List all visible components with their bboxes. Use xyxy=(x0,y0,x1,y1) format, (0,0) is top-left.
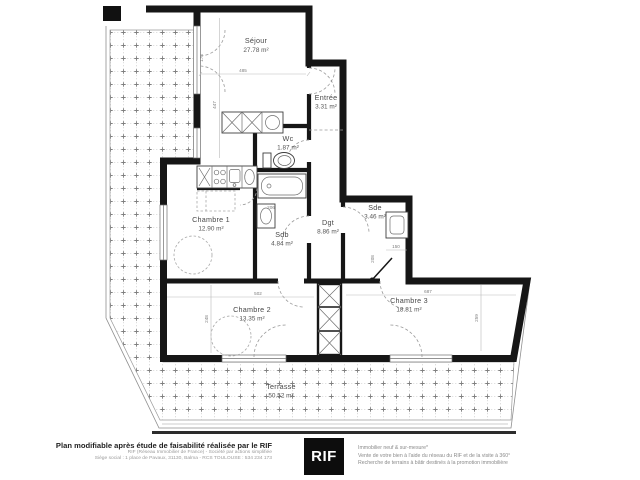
room-area-dgt: 8.86 m² xyxy=(317,229,339,236)
dim-sejour-height: 447 xyxy=(212,101,217,109)
dim-sde-height: 208 xyxy=(370,255,375,263)
room-label-wc: Wc xyxy=(283,134,294,143)
bathtub-icon xyxy=(258,174,306,198)
room-label-chambre1: Chambre 1 xyxy=(192,215,230,224)
room-label-terrasse: Terrasse xyxy=(266,382,296,391)
room-area-chambre2: 13.35 m² xyxy=(239,316,264,323)
rif-logo-text: RIF xyxy=(311,448,337,465)
footer-headline: Plan modifiable après étude de faisabili… xyxy=(30,441,272,450)
rif-logo: RIF xyxy=(304,438,344,475)
room-area-wc: 1.87 m² xyxy=(277,145,299,152)
boundary-corner-wall xyxy=(103,6,121,21)
room-label-entree: Entrée xyxy=(315,93,338,102)
dim-sdb: 206 xyxy=(267,205,275,210)
toilet-icon xyxy=(263,153,295,169)
dim-sejour-width: 485 xyxy=(239,68,247,73)
room-label-sdb: Sdb xyxy=(275,230,289,239)
room-area-terrasse: 50.52 m² xyxy=(268,393,293,400)
dim-chambre3-height: 259 xyxy=(474,314,479,322)
footer-address-line: Siège social : 1 place de Pavaux, 31130,… xyxy=(30,456,272,462)
room-area-entree: 3.31 m² xyxy=(315,104,337,111)
footer-services: Immobilier neuf & sur-mesure* Vente de v… xyxy=(358,445,628,468)
dim-chambre3-width: 687 xyxy=(424,289,432,294)
room-label-chambre3: Chambre 3 xyxy=(390,296,428,305)
closet-shaft xyxy=(318,284,341,355)
room-label-sde: Sde xyxy=(368,203,382,212)
footer-service-3: Recherche de terrains à bâtir destinés à… xyxy=(358,460,628,468)
dim-chambre2-width: 502 xyxy=(254,291,262,296)
window-chambre3 xyxy=(390,355,452,362)
furniture-circle-chambre1 xyxy=(174,236,212,274)
footer-service-1: Immobilier neuf & sur-mesure* xyxy=(358,445,628,453)
footer-disclaimer: Plan modifiable après étude de faisabili… xyxy=(30,441,272,463)
room-label-sejour: Séjour xyxy=(245,36,268,45)
bed-chambre1 xyxy=(197,191,235,211)
floor-plan-page: 485 447 178 502 248 687 259 206 150 208 … xyxy=(0,0,640,480)
closet-boxes xyxy=(222,112,283,133)
floor-plan-drawing: 485 447 178 502 248 687 259 206 150 208 … xyxy=(0,0,640,480)
dim-chambre2-height: 248 xyxy=(204,315,209,323)
room-label-chambre2: Chambre 2 xyxy=(233,305,271,314)
room-area-chambre1: 12.90 m² xyxy=(198,226,223,233)
dim-sde-width: 150 xyxy=(392,244,400,249)
room-area-sde: 3.46 m² xyxy=(364,214,386,221)
footer-service-2: Vente de votre bien à l'aide du réseau d… xyxy=(358,453,628,461)
window-kitchen xyxy=(194,128,201,158)
room-area-sejour: 27.78 m² xyxy=(243,47,268,54)
room-area-chambre3: 18.81 m² xyxy=(396,307,421,314)
dim-sejour-door: 178 xyxy=(199,54,204,62)
room-area-sdb: 4.84 m² xyxy=(271,241,293,248)
sde-sink-icon xyxy=(386,212,408,238)
kitchen-counter xyxy=(197,166,257,188)
window-chambre1 xyxy=(160,205,167,260)
room-label-dgt: Dgt xyxy=(322,218,334,227)
